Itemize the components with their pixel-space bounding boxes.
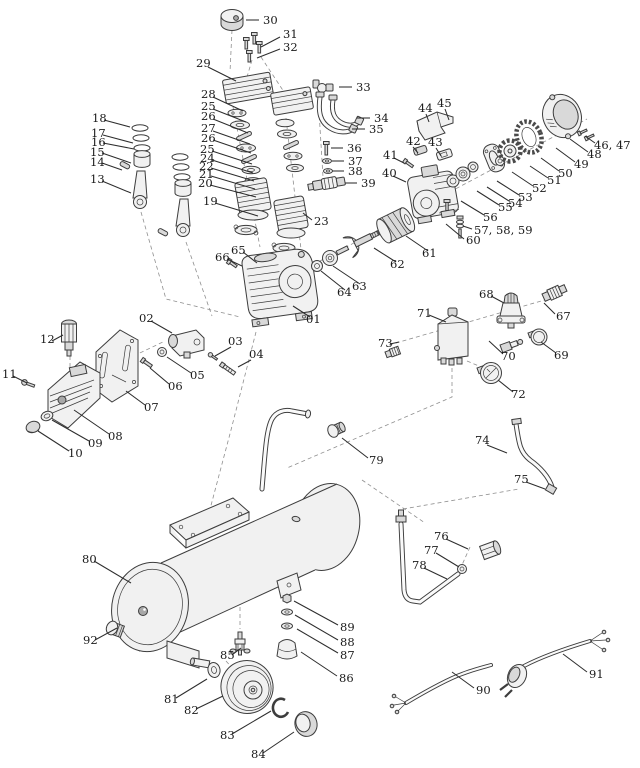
part-68-regulator [497,293,525,328]
exploded-parts-diagram: 3031322928252627262524222120191817161514… [0,0,640,768]
part-label-66: 66 [215,250,230,264]
part-label-48: 48 [587,147,602,161]
part-43-clamp [436,148,453,160]
part-label-60: 60 [466,233,481,247]
part-30-intake-cap [221,10,243,31]
part-label-92: 92 [83,633,98,647]
leader-line-83 [232,711,271,734]
leader-line-15 [102,153,131,163]
leader-line-75 [526,482,545,489]
part-62-crankshaft [332,223,383,263]
part-label-90: 90 [476,683,491,697]
leader-line-07 [126,391,145,405]
part-label-77: 77 [424,543,439,557]
diagram-canvas: 3031322928252627262524222120191817161514… [0,0,640,768]
part-label-40: 40 [382,166,397,180]
part-12-air-filter [62,320,77,356]
part-piston-rod-right [157,154,191,237]
part-label-78: 78 [412,558,427,572]
part-label-83: 83 [220,728,235,742]
part-label-82: 82 [184,703,199,717]
part-label-72: 72 [511,387,526,401]
part-label-65: 65 [231,243,246,257]
part-label-74: 74 [475,433,490,447]
part-57-60-bolt-stack [457,216,464,238]
part-83-retainer-clip [273,699,288,717]
part-82-wheel [215,655,279,720]
part-04-bolt [219,362,236,375]
leader-line-04 [238,360,251,367]
leader-line-05 [167,357,191,373]
part-19-cylinder-left [234,177,272,235]
part-label-79: 79 [369,453,384,467]
part-handle-tube [262,410,311,489]
part-label-11: 11 [2,367,17,381]
leader-line-08 [74,410,109,434]
part-06-screw [140,357,153,368]
part-cylinder-head-2 [270,87,313,116]
leader-line-06 [150,368,169,384]
part-69-pressure-gauge [528,329,547,345]
leader-line-51 [530,166,548,178]
part-label-67: 67 [556,309,571,323]
part-label-33: 33 [356,80,371,94]
part-label-52: 52 [532,181,547,195]
part-label-56: 56 [483,210,498,224]
part-label-75: 75 [514,472,529,486]
part-label-01: 01 [306,312,321,326]
part-67-fitting [541,283,567,303]
leader-line-67 [544,303,555,314]
part-label-87: 87 [340,648,355,662]
part-front-leg-bracket [167,641,210,668]
leader-line-80 [94,561,131,583]
part-label-45: 45 [437,96,452,110]
leader-line-10 [38,431,69,451]
leader-line-77 [436,553,459,567]
part-label-19: 19 [203,194,218,208]
leader-line-53 [497,181,519,195]
part-label-32: 32 [283,40,298,54]
part-label-86: 86 [339,671,354,685]
part-label-03: 03 [228,334,243,348]
part-label-64: 64 [337,285,352,299]
part-39-manifold-fitting [307,175,345,192]
part-label-44: 44 [418,101,433,115]
part-label-89: 89 [340,620,355,634]
part-label-18: 18 [92,111,107,125]
part-05-washer [158,348,167,357]
part-46-47-screws [577,128,594,141]
part-label-62: 62 [390,257,405,271]
part-label-49: 49 [574,157,589,171]
part-02-unloader-bracket [169,330,205,358]
part-79-plug [326,420,347,439]
leader-line-48 [570,139,588,152]
part-48-end-cap [536,87,589,145]
part-label-23: 23 [314,214,329,228]
part-13-18-piston-rod-left [119,125,150,209]
part-08-head-cover [48,362,100,428]
part-label-05: 05 [190,368,205,382]
part-07-valve-plate [96,330,138,402]
leader-line-91 [563,654,587,672]
part-label-42: 42 [406,134,421,148]
part-63-bearing [323,251,338,266]
part-label-07: 07 [144,400,159,414]
part-label-80: 80 [82,552,97,566]
part-label-68: 68 [479,287,494,301]
part-label-85: 85 [220,648,235,662]
leader-line-79 [342,438,368,458]
part-49-stator-ring [512,118,546,157]
part-40-motor-body [405,162,460,224]
part-label-36: 36 [347,141,362,155]
leader-line-76 [446,539,468,549]
part-label-08: 08 [108,429,123,443]
part-10-plug [25,419,42,434]
leader-line-88 [295,615,338,640]
part-label-91: 91 [589,667,604,681]
leader-line-84 [263,732,294,753]
part-84-hub-cap [292,709,320,739]
part-23-cylinder-right [272,196,309,253]
leader-line-87 [297,629,338,653]
part-label-31: 31 [283,27,298,41]
part-label-51: 51 [547,173,562,187]
leader-line-18 [104,120,130,127]
part-label-12: 12 [40,332,55,346]
part-label-29: 29 [196,56,211,70]
part-label-88: 88 [340,635,355,649]
part-valve-gasket-stack-right [276,119,304,171]
part-64-washer [312,261,323,272]
part-label-41: 41 [383,148,398,162]
part-label-09: 09 [88,436,103,450]
part-76-check-valve [480,540,503,560]
part-label-13: 13 [90,172,105,186]
leader-line-14 [102,163,122,170]
leader-line-31 [261,37,280,47]
part-34-35-discharge-tubes [316,92,364,133]
leader-line-13 [102,181,131,193]
part-label-04: 04 [249,347,264,361]
part-label-57-58-59: 57, 58, 59 [474,223,533,237]
part-label-61: 61 [422,246,437,260]
leader-line-78 [424,568,447,579]
part-label-39: 39 [361,176,376,190]
leader-line-03 [215,347,231,356]
part-label-76: 76 [434,529,449,543]
part-33-elbow-fitting [313,80,333,93]
part-label-81: 81 [164,692,179,706]
part-29-cylinder-head [222,72,273,104]
leader-line-86 [301,652,337,676]
leader-line-74 [487,445,507,453]
leader-line-52 [512,172,533,186]
leader-line-02 [151,321,172,333]
part-label-02: 02 [139,311,154,325]
part-71-pressure-switch [435,308,469,365]
part-label-14: 14 [90,155,105,169]
part-label-35: 35 [369,122,384,136]
part-label-63: 63 [352,279,367,293]
leader-line-89 [294,601,338,625]
leader-line-17 [103,135,133,143]
part-label-69: 69 [554,348,569,362]
part-label-84: 84 [251,747,266,761]
leader-line-49 [556,148,575,162]
leader-line-56 [461,201,484,215]
part-91-power-cord [500,630,610,697]
leader-line-57-58-59 [463,226,472,229]
part-03-screw [207,352,218,361]
part-label-71: 71 [417,306,432,320]
leader-line-16 [103,143,134,149]
part-label-73: 73 [378,336,393,350]
part-label-06: 06 [168,379,183,393]
leader-line-82 [196,696,223,709]
part-86-89-foot-stack [277,594,297,659]
part-36-38-bolt-washers [323,142,333,174]
leader-line-29 [208,67,236,81]
part-41-screw [403,158,415,168]
part-label-10: 10 [68,446,83,460]
part-label-30: 30 [263,13,278,27]
part-label-43: 43 [428,135,443,149]
part-label-70: 70 [501,349,516,363]
leader-line-50 [541,158,559,171]
leader-line-81 [176,679,207,698]
part-label-20: 20 [198,176,213,190]
part-label-55: 55 [498,200,513,214]
part-11-screw [21,379,35,389]
